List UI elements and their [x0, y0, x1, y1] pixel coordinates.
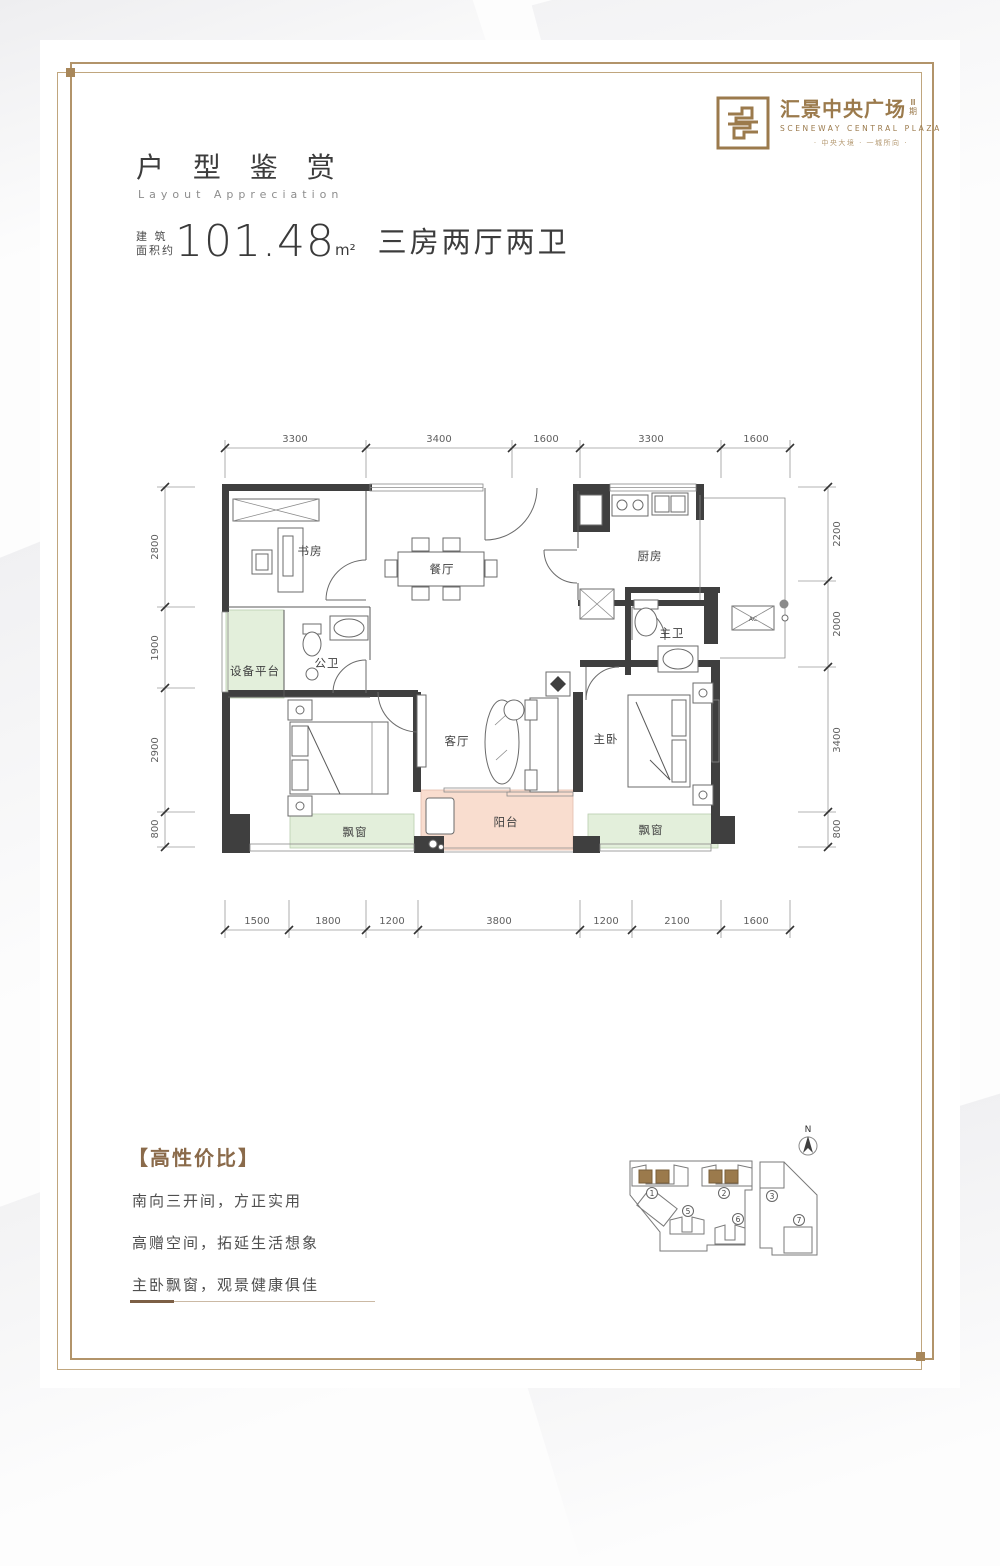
- brand-emblem-icon: [716, 96, 770, 150]
- area-label-line2: 面积约: [136, 244, 175, 258]
- layout-type: 三房两厅两卫: [378, 222, 570, 262]
- room-label-bay-window-left: 飘窗: [343, 825, 368, 839]
- area-summary: 建 筑 面积约 101.48 m² 三房两厅两卫: [136, 222, 570, 262]
- svg-text:2100: 2100: [664, 916, 689, 927]
- frame-corner-dot: [66, 68, 75, 77]
- ac-unit-label: AC: [749, 616, 757, 623]
- highlights-divider: [130, 1300, 375, 1303]
- svg-text:3300: 3300: [638, 434, 663, 445]
- dimension-bottom: 1500 1800 1200 3800 1200 2100 1600: [221, 900, 794, 938]
- brand-name-en: SCENEWAY CENTRAL PLAZA: [780, 124, 942, 133]
- north-arrow-icon: [799, 1136, 817, 1155]
- svg-text:7: 7: [797, 1216, 802, 1225]
- brand-phase: Ⅲ期: [908, 98, 918, 116]
- svg-text:2900: 2900: [150, 737, 161, 762]
- brand-tagline: · 中央大境 · 一城所向 ·: [780, 138, 942, 148]
- dimension-top: 3300 3400 1600 3300 1600: [221, 434, 794, 478]
- svg-text:1800: 1800: [315, 916, 340, 927]
- site-plan: 1 2 3 5 6 7 N: [612, 1120, 837, 1275]
- svg-text:800: 800: [150, 819, 161, 838]
- equipment-platform-zone: [226, 610, 284, 698]
- floorplan: 3300 3400 1600 3300 1600 1500 1800 1200 …: [140, 400, 860, 960]
- room-label-equipment: 设备平台: [230, 664, 280, 678]
- svg-text:1200: 1200: [379, 916, 404, 927]
- svg-text:1500: 1500: [244, 916, 269, 927]
- area-label: 建 筑 面积约: [136, 230, 175, 262]
- room-label-kitchen: 厨房: [638, 549, 663, 563]
- svg-text:3400: 3400: [832, 727, 843, 752]
- frame-corner-dot: [916, 1352, 925, 1361]
- room-label-dining: 餐厅: [430, 562, 455, 576]
- svg-text:1600: 1600: [743, 916, 768, 927]
- svg-text:3300: 3300: [282, 434, 307, 445]
- svg-text:6: 6: [736, 1215, 741, 1224]
- room-label-master-bath: 主卫: [660, 626, 685, 640]
- highlight-item: 主卧飘窗，观景健康俱佳: [132, 1274, 319, 1295]
- page-subtitle: Layout Appreciation: [138, 188, 343, 201]
- svg-text:2000: 2000: [832, 611, 843, 636]
- site-plan-drawing: 1 2 3 5 6 7 N: [612, 1120, 837, 1275]
- brand-logo: 汇景中央广场 Ⅲ期 SCENEWAY CENTRAL PLAZA · 中央大境 …: [716, 96, 942, 150]
- highlights-title: 【高性价比】: [128, 1142, 260, 1171]
- highlight-item: 南向三开间，方正实用: [132, 1190, 302, 1211]
- room-label-bay-window-right: 飘窗: [639, 823, 664, 837]
- svg-text:5: 5: [686, 1207, 691, 1216]
- svg-text:1900: 1900: [150, 635, 161, 660]
- svg-text:1200: 1200: [593, 916, 618, 927]
- dimension-right: 2200 2000 3400 800: [798, 483, 843, 851]
- room-label-master-bed: 主卧: [594, 732, 619, 746]
- floorplan-drawing: 3300 3400 1600 3300 1600 1500 1800 1200 …: [140, 400, 860, 960]
- svg-text:1600: 1600: [533, 434, 558, 445]
- room-label-study: 书房: [298, 544, 323, 558]
- svg-text:2800: 2800: [150, 534, 161, 559]
- area-unit: m²: [335, 241, 356, 262]
- room-label-balcony: 阳台: [494, 815, 519, 829]
- brand-name: 汇景中央广场: [780, 98, 906, 120]
- room-label-guest-bath: 公卫: [315, 656, 340, 670]
- svg-text:3800: 3800: [486, 916, 511, 927]
- highlight-item: 高赠空间，拓延生活想象: [132, 1232, 319, 1253]
- svg-text:3400: 3400: [426, 434, 451, 445]
- area-value: 101.48: [175, 222, 335, 262]
- svg-text:800: 800: [832, 819, 843, 838]
- svg-text:3: 3: [770, 1192, 775, 1201]
- svg-text:2: 2: [722, 1189, 727, 1198]
- svg-text:1600: 1600: [743, 434, 768, 445]
- svg-text:2200: 2200: [832, 521, 843, 546]
- area-label-line1: 建 筑: [136, 230, 175, 244]
- north-label: N: [805, 1125, 812, 1135]
- dimension-left: 2800 1900 2900 800: [150, 483, 195, 851]
- room-label-living: 客厅: [445, 734, 470, 748]
- page-title: 户 型 鉴 赏: [136, 146, 345, 186]
- svg-text:1: 1: [650, 1189, 655, 1198]
